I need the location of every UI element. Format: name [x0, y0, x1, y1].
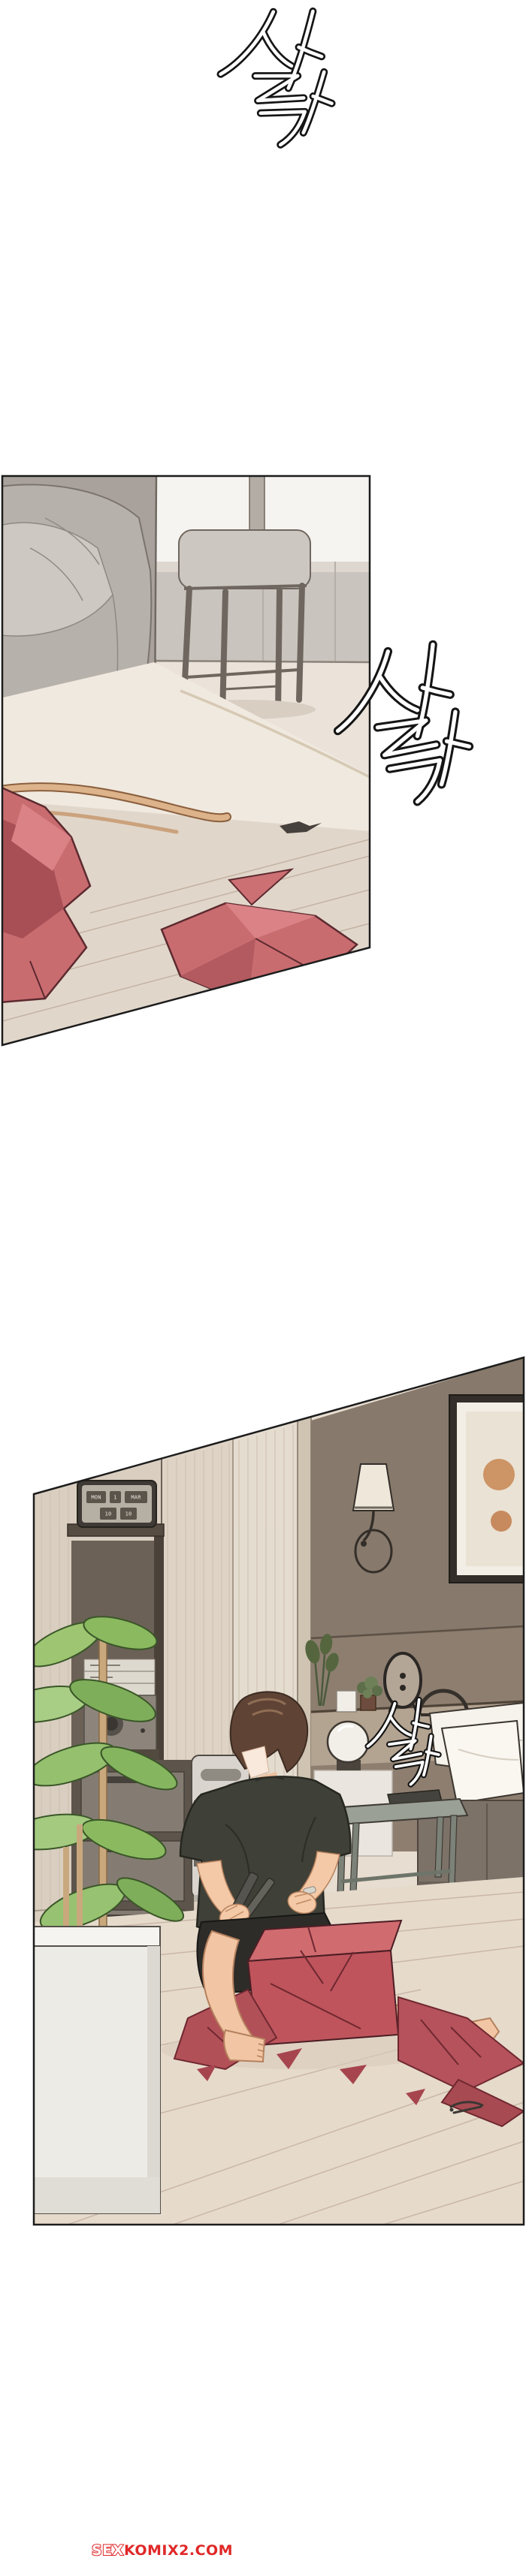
watermark-prefix: SEX — [92, 2542, 124, 2559]
panel-2: MON 1 MAR 10 10 — [0, 1351, 526, 2230]
panel-1 — [0, 450, 376, 1066]
panel2-flip-clock: MON 1 MAR 10 10 — [77, 1481, 156, 1527]
panel2-red-box — [248, 1921, 401, 2045]
sfx-sarak-top — [212, 0, 344, 151]
comic-page: MON 1 MAR 10 10 — [0, 0, 526, 2576]
panel2-framed-art — [449, 1395, 526, 1583]
watermark-suffix: KOMIX2.COM — [124, 2542, 233, 2559]
watermark: SEX KOMIX2.COM — [92, 2542, 233, 2559]
clock-date: 1 — [113, 1495, 116, 1501]
clock-month: MAR — [131, 1495, 141, 1501]
clock-day: MON — [91, 1495, 101, 1501]
page-artwork: MON 1 MAR 10 10 — [0, 0, 526, 2576]
clock-hour: 10 — [105, 1511, 112, 1517]
clock-minute: 10 — [125, 1511, 132, 1517]
